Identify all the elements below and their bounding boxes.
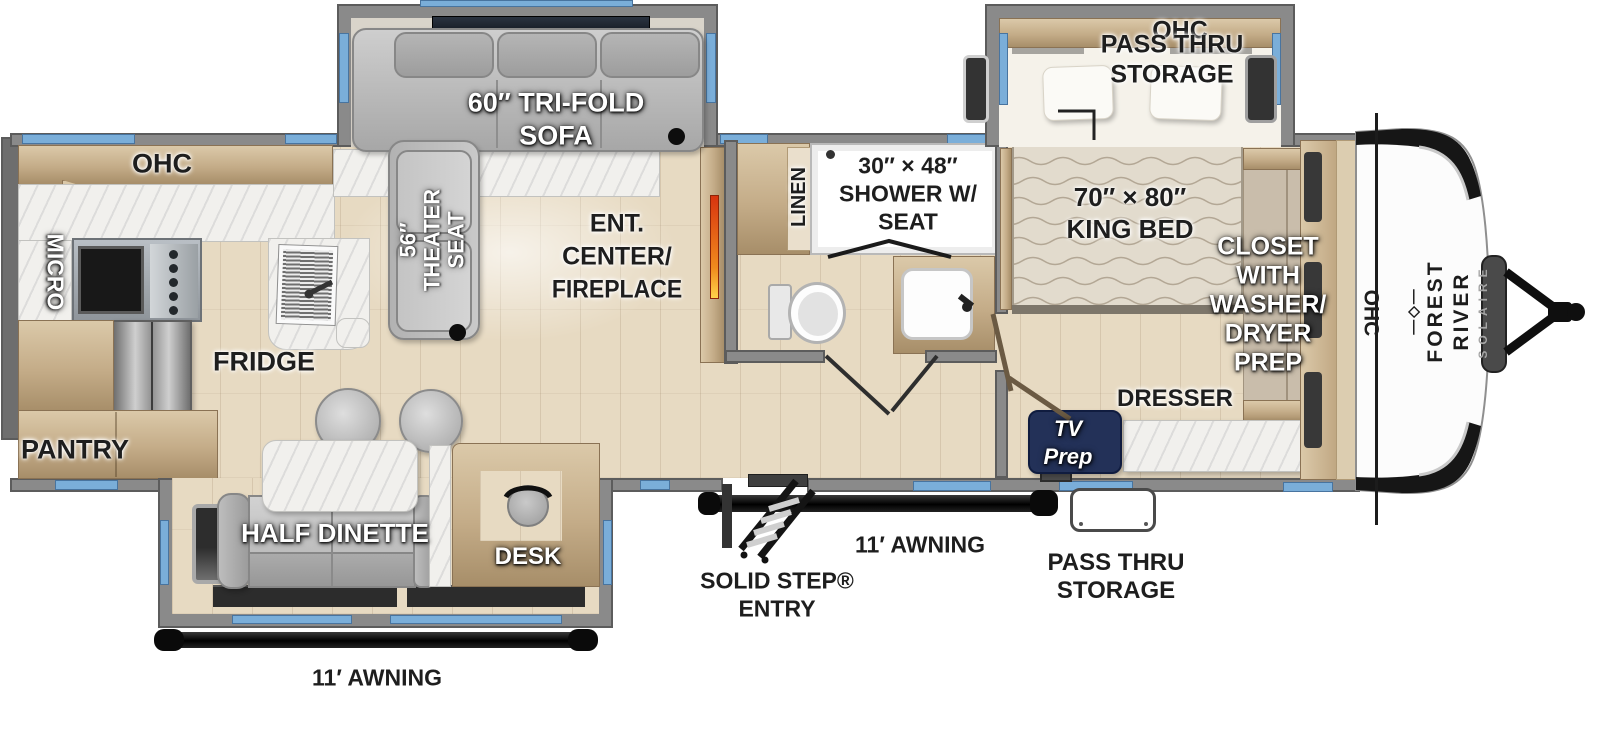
sofa-label-line2: SOFA (519, 123, 593, 150)
king-bed-label-line2: KING BED (1066, 216, 1193, 242)
peninsula-end-cap (336, 318, 370, 348)
hitch-ball (1567, 303, 1585, 321)
bed-slide-window-left (999, 33, 1008, 105)
theater-seat-label: 56″ THEATER SEAT (397, 189, 470, 291)
closet-label-line5: PREP (1234, 351, 1302, 376)
bath-wall-south-right (925, 350, 997, 363)
theater-label-line2: THEATER (421, 189, 445, 291)
dinette-pillar (429, 445, 451, 587)
king-bed-label-line1: 70″ × 80″ (1074, 184, 1186, 210)
dresser-label: DRESSER (1117, 387, 1233, 411)
pass-thru-bottom-label-line2: STORAGE (1057, 579, 1175, 603)
step-foot-2 (762, 557, 769, 564)
shower-label-line3: SEAT (878, 211, 938, 234)
awning-right-label: 11′ AWNING (855, 534, 985, 557)
burner-knob-3 (169, 278, 178, 287)
ent-center-label-line3: FIREPLACE (552, 278, 682, 303)
brand-name: FOREST RIVER (1423, 235, 1476, 387)
window-bottom-hall (913, 481, 991, 491)
slide-floor-mat-2 (407, 585, 585, 607)
microwave-oven (78, 246, 144, 314)
kitchen-ohc-label: OHC (132, 151, 192, 178)
refrigerator-door-split (151, 322, 153, 410)
pantry-label: PANTRY (21, 437, 129, 464)
awning-rod-left-cap-2 (568, 629, 598, 651)
hall-bedroom-wall (995, 370, 1008, 478)
desk-chair (507, 485, 549, 527)
sofa-back-cushion-2 (497, 32, 597, 78)
awning-rod-left-cap-1 (154, 629, 184, 651)
dinette-window-right (603, 520, 612, 585)
brand-block: ―◇― FOREST RIVER SOLAIRE (1405, 235, 1491, 387)
toilet-seat (798, 292, 838, 336)
step-rail-1 (741, 481, 796, 549)
closet-label-line3: WASHER/ (1210, 293, 1327, 318)
tv-prep-label-line2: Prep (1044, 446, 1093, 468)
closet-label-line2: WITH (1236, 264, 1300, 289)
forest-river-logo: ―◇― (1405, 235, 1423, 387)
entry-door-jamb (722, 484, 732, 548)
bed-slide-exterior-window (963, 55, 989, 123)
window-bottom-mid (640, 480, 670, 490)
dinette-window-bottom-1 (232, 615, 352, 624)
awning-rod-left (160, 632, 592, 648)
kitchen-sink (277, 245, 338, 325)
bath-faucet-base (962, 302, 972, 312)
front-ohc-face (1336, 140, 1360, 480)
ohc-shadow-1 (1012, 48, 1084, 54)
burner-knob-2 (169, 264, 178, 273)
buffet-counter (333, 149, 660, 197)
bedside-ledge (1000, 148, 1012, 310)
front-ohc-slot-1 (1304, 152, 1322, 222)
entry-door-sill (748, 474, 808, 487)
sofa-back-cushion-1 (394, 32, 494, 78)
dinette-window-left (160, 520, 169, 585)
dinette-window-bottom-2 (390, 615, 562, 624)
closet-label-line4: DRYER (1225, 322, 1312, 347)
shower-label-line2: SHOWER W/ (839, 183, 977, 206)
micro-label: MICRO (44, 234, 67, 311)
hitch-frame-lower (1506, 315, 1556, 352)
cabinet-beside-fridge (18, 320, 114, 412)
theater-label-line1: 56″ (397, 189, 421, 291)
front-cap-chrome (1419, 147, 1468, 200)
window-bottom-front (1283, 482, 1333, 492)
bed-slide-interior-window (1245, 55, 1277, 123)
pass-thru-top-label-line2: STORAGE (1110, 63, 1233, 88)
entry-label-line2: ENTRY (738, 598, 815, 621)
bath-wall-south-left (725, 350, 825, 363)
dresser (1123, 420, 1303, 472)
entry-label-line1: SOLID STEP® (700, 570, 854, 593)
front-ohc-slot-3 (1304, 372, 1322, 448)
awning-rod-right (706, 495, 1046, 512)
half-dinette-label: HALF DINETTE (241, 520, 429, 546)
sofa-slide-window-top (420, 0, 633, 7)
pillow-left (1042, 65, 1114, 121)
theater-cupholder (449, 324, 466, 341)
brand-model: SOLAIRE (1475, 235, 1491, 387)
awning-rod-right-cap-1 (698, 492, 720, 515)
front-cap-chrome-2 (1419, 422, 1468, 475)
sofa-label-line1: 60″ TRI-FOLD (468, 90, 644, 117)
window-bottom-rear (55, 480, 118, 490)
window-top-rear (22, 134, 135, 144)
step-tread-2 (761, 512, 791, 521)
pass-thru-door-screw-2 (1144, 522, 1148, 526)
ent-center-label-line1: ENT. (590, 212, 644, 237)
closet-label-line1: CLOSET (1217, 235, 1318, 260)
burner-knob-1 (169, 250, 178, 259)
sofa-cupholder (668, 128, 685, 145)
burner-knob-4 (169, 292, 178, 301)
living-bath-wall (724, 140, 738, 364)
burner-knob-5 (169, 306, 178, 315)
theater-label-line3: SEAT (445, 189, 469, 291)
front-ohc-label: OHC (1361, 290, 1382, 337)
bed-footboard (1012, 305, 1243, 314)
sofa-slide-window-left (339, 33, 349, 103)
step-tread-3 (754, 524, 784, 533)
pass-thru-top-label-line1: PASS THRU (1101, 33, 1244, 58)
sofa-slide-window-right (706, 33, 716, 103)
step-foot-1 (741, 552, 748, 559)
fireplace (710, 195, 719, 299)
floor-plan-canvas: OHC MICRO FRIDGE PANTRY 60″ TRI-FOLD SOF… (0, 0, 1600, 732)
pass-thru-door (1070, 488, 1156, 532)
fridge-label: FRIDGE (213, 349, 315, 376)
linen-label: LINEN (789, 167, 809, 227)
hitch-frame-upper (1506, 272, 1556, 309)
dinette-table (262, 440, 418, 512)
ent-center-label-line2: CENTER/ (562, 245, 672, 270)
pass-thru-bottom-label-line1: PASS THRU (1048, 551, 1185, 575)
shower-label-line1: 30″ × 48″ (858, 155, 957, 178)
awning-rod-right-cap-2 (1030, 490, 1058, 516)
sofa-back-cushion-3 (600, 32, 700, 78)
awning-left-label: 11′ AWNING (312, 667, 442, 690)
shower-head (826, 150, 835, 159)
hitch-coupler (1548, 302, 1572, 322)
tv-prep-label-line1: TV (1054, 418, 1082, 440)
window-top-kitchen (285, 134, 337, 144)
pass-thru-door-screw-1 (1079, 522, 1083, 526)
step-tread-4 (747, 536, 777, 545)
desk-label: DESK (495, 545, 562, 569)
